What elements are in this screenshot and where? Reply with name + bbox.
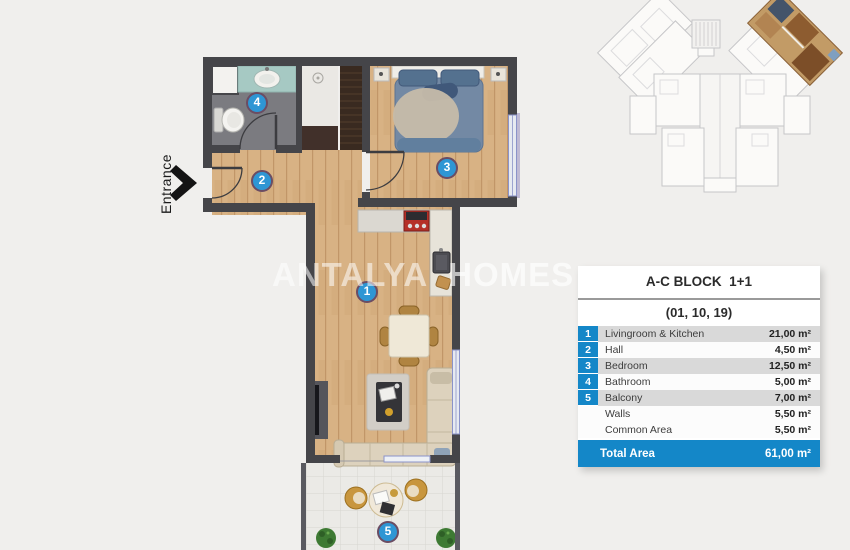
total-label: Total Area	[578, 448, 765, 460]
row-label: Walls	[598, 406, 775, 422]
table-row: Common Area 5,50 m²	[578, 422, 820, 438]
closet	[302, 126, 338, 150]
toilet	[214, 108, 244, 132]
row-value: 12,50 m²	[769, 358, 820, 374]
bathroom-sink	[238, 66, 296, 92]
row-value: 5,50 m²	[775, 422, 820, 438]
room-badge-bathroom: 4	[246, 92, 268, 114]
plant	[316, 528, 336, 548]
key-plan	[598, 0, 843, 192]
row-number: 1	[578, 326, 598, 342]
balcony-table	[369, 483, 403, 517]
row-number	[578, 406, 598, 422]
area-table-title: A-C BLOCK 1+1	[578, 266, 820, 300]
area-table-subtitle: (01, 10, 19)	[578, 300, 820, 326]
row-label: Livingroom & Kitchen	[598, 326, 769, 342]
table-row: Walls 5,50 m²	[578, 406, 820, 422]
row-number: 4	[578, 374, 598, 390]
row-value: 5,50 m²	[775, 406, 820, 422]
table-row: 3 Bedroom 12,50 m²	[578, 358, 820, 374]
stove	[404, 211, 429, 231]
row-value: 21,00 m²	[769, 326, 820, 342]
balcony-chair	[345, 487, 367, 509]
row-number	[578, 422, 598, 438]
livingroom-window	[453, 350, 460, 434]
row-value: 4,50 m²	[775, 342, 820, 358]
balcony-wall	[301, 463, 306, 550]
table-row: 4 Bathroom 5,00 m²	[578, 374, 820, 390]
total-value: 61,00 m²	[765, 448, 820, 460]
plant	[436, 528, 456, 548]
row-value: 7,00 m²	[775, 390, 820, 406]
wardrobe	[340, 66, 362, 150]
watermark-part2: HOMES	[448, 256, 574, 293]
room-badge-balcony: 5	[377, 521, 399, 543]
table-row: 2 Hall 4,50 m²	[578, 342, 820, 358]
row-label: Balcony	[598, 390, 775, 406]
row-label: Common Area	[598, 422, 775, 438]
coffee-table	[367, 374, 409, 430]
watermark-part1: ANTALYA	[272, 256, 428, 293]
shower-area	[302, 66, 338, 126]
bathroom-niche	[212, 66, 238, 94]
row-number: 3	[578, 358, 598, 374]
table-row: 5 Balcony 7,00 m²	[578, 390, 820, 406]
entrance-arrow-icon	[170, 165, 197, 201]
total-row: Total Area 61,00 m²	[578, 440, 820, 467]
row-value: 5,00 m²	[775, 374, 820, 390]
row-number: 5	[578, 390, 598, 406]
row-number: 2	[578, 342, 598, 358]
area-table: A-C BLOCK 1+1 (01, 10, 19) 1 Livingroom …	[578, 266, 820, 467]
balcony-wall	[455, 463, 460, 550]
room-badge-hall: 2	[251, 170, 273, 192]
room-badge-bedroom: 3	[436, 157, 458, 179]
row-label: Hall	[598, 342, 775, 358]
bedroom-window	[509, 113, 521, 198]
tv-unit	[315, 381, 328, 439]
watermark: ANTALYAHOMES	[272, 256, 574, 294]
row-label: Bathroom	[598, 374, 775, 390]
screenshot-root: Entrance 1 2 3 4 5 ANTALYAHOMES A-C BLOC…	[0, 0, 850, 550]
balcony-chair	[405, 479, 427, 501]
table-row: 1 Livingroom & Kitchen 21,00 m²	[578, 326, 820, 342]
row-label: Bedroom	[598, 358, 769, 374]
entrance-label: Entrance	[158, 139, 174, 229]
